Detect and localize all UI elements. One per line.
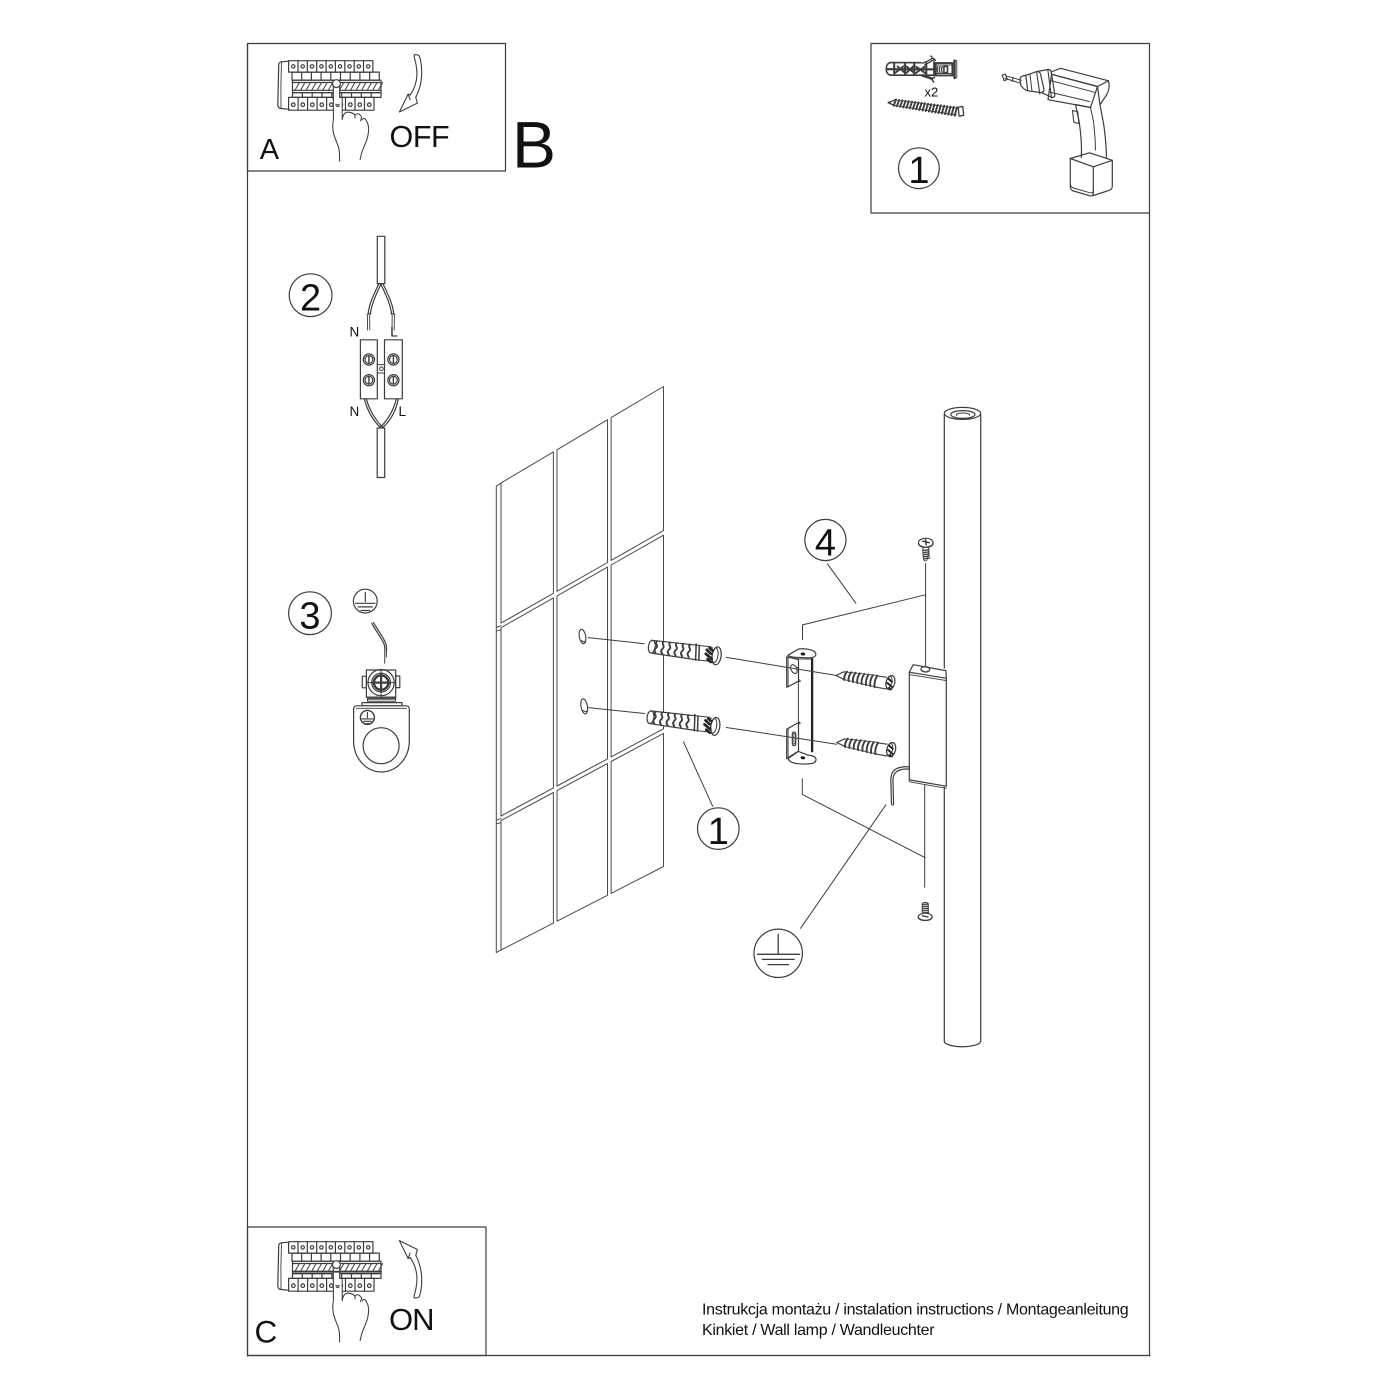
svg-text:B: B	[512, 108, 556, 182]
svg-text:L: L	[390, 325, 398, 340]
svg-text:OFF: OFF	[390, 120, 450, 154]
svg-text:Instrukcja montażu / instalati: Instrukcja montażu / instalation instruc…	[702, 1302, 1128, 1319]
svg-text:1: 1	[708, 811, 729, 853]
svg-text:1: 1	[908, 150, 929, 192]
svg-text:N: N	[350, 325, 360, 340]
svg-text:3: 3	[299, 596, 320, 638]
svg-text:L: L	[399, 404, 407, 419]
svg-text:x2: x2	[925, 84, 939, 99]
svg-text:A: A	[260, 134, 280, 166]
svg-text:4: 4	[815, 523, 836, 565]
svg-text:Kinkiet / Wall lamp / Wandleuc: Kinkiet / Wall lamp / Wandleuchter	[702, 1322, 935, 1339]
svg-text:C: C	[255, 1313, 278, 1349]
svg-text:2: 2	[300, 278, 321, 320]
svg-text:ON: ON	[389, 1302, 434, 1337]
svg-text:N: N	[350, 404, 360, 419]
